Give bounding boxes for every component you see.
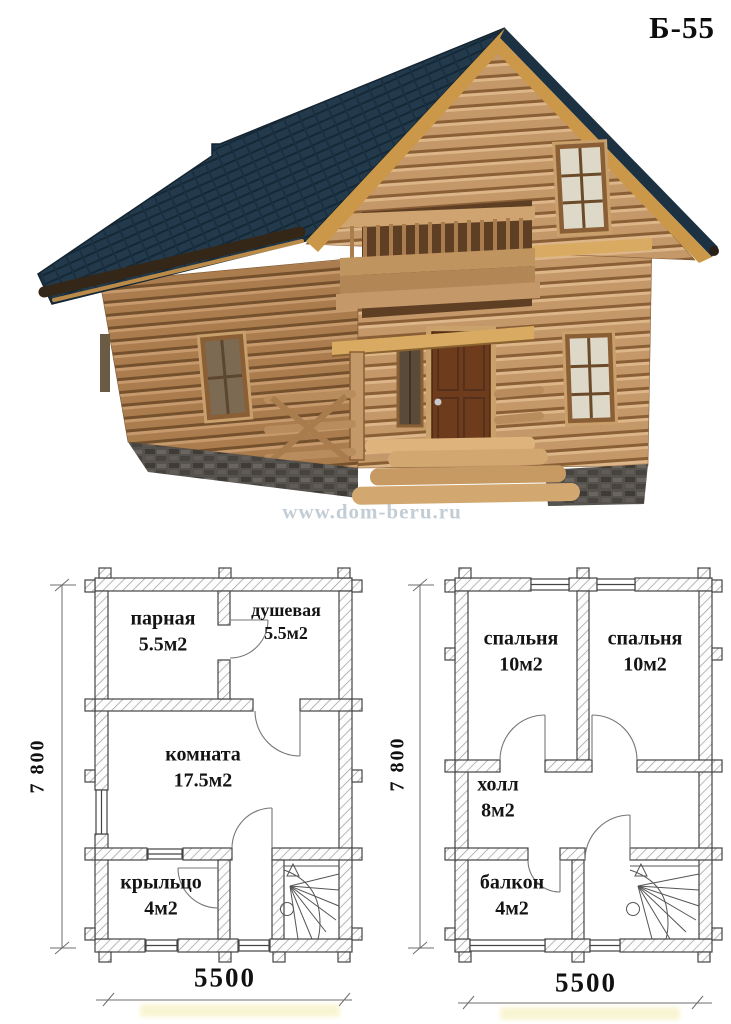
porch-column <box>350 352 364 460</box>
first-floor-window <box>563 331 616 425</box>
plan1-wall <box>95 578 352 591</box>
balcony <box>336 200 540 318</box>
room-label-balkon: балкон 4м2 <box>480 870 544 921</box>
plan1-stairs <box>281 864 340 939</box>
gable-window <box>554 141 611 236</box>
room-label-dushevaya: душевая 5.5м2 <box>251 599 321 645</box>
room-label-kholl: холл 8м2 <box>477 772 518 823</box>
faded-watermark-strip <box>140 1004 340 1017</box>
dim-height-floor2: 7 800 <box>387 737 410 792</box>
site-watermark: www.dom-beru.ru <box>282 500 462 525</box>
dim-width-floor1: 5500 <box>194 963 256 994</box>
room-label-parnaya: парная 5.5м2 <box>131 606 196 657</box>
dim-height-floor1: 7 800 <box>27 739 50 794</box>
room-label-spalnya-1: спальня 10м2 <box>484 626 559 677</box>
left-wall-window <box>198 332 251 422</box>
project-title: Б-55 <box>649 10 715 46</box>
dim-width-floor2: 5500 <box>555 968 617 999</box>
house-illustration <box>38 28 719 506</box>
room-label-kryltso: крыльцо 4м2 <box>120 870 202 921</box>
faded-watermark-strip <box>500 1007 680 1020</box>
room-label-komnata: комната 17.5м2 <box>165 742 241 793</box>
door-handle <box>435 399 442 406</box>
left-small-window <box>100 334 110 392</box>
plan2-stairs <box>627 864 700 939</box>
room-label-spalnya-2: спальня 10м2 <box>608 626 683 677</box>
plan2-doors <box>500 715 637 892</box>
